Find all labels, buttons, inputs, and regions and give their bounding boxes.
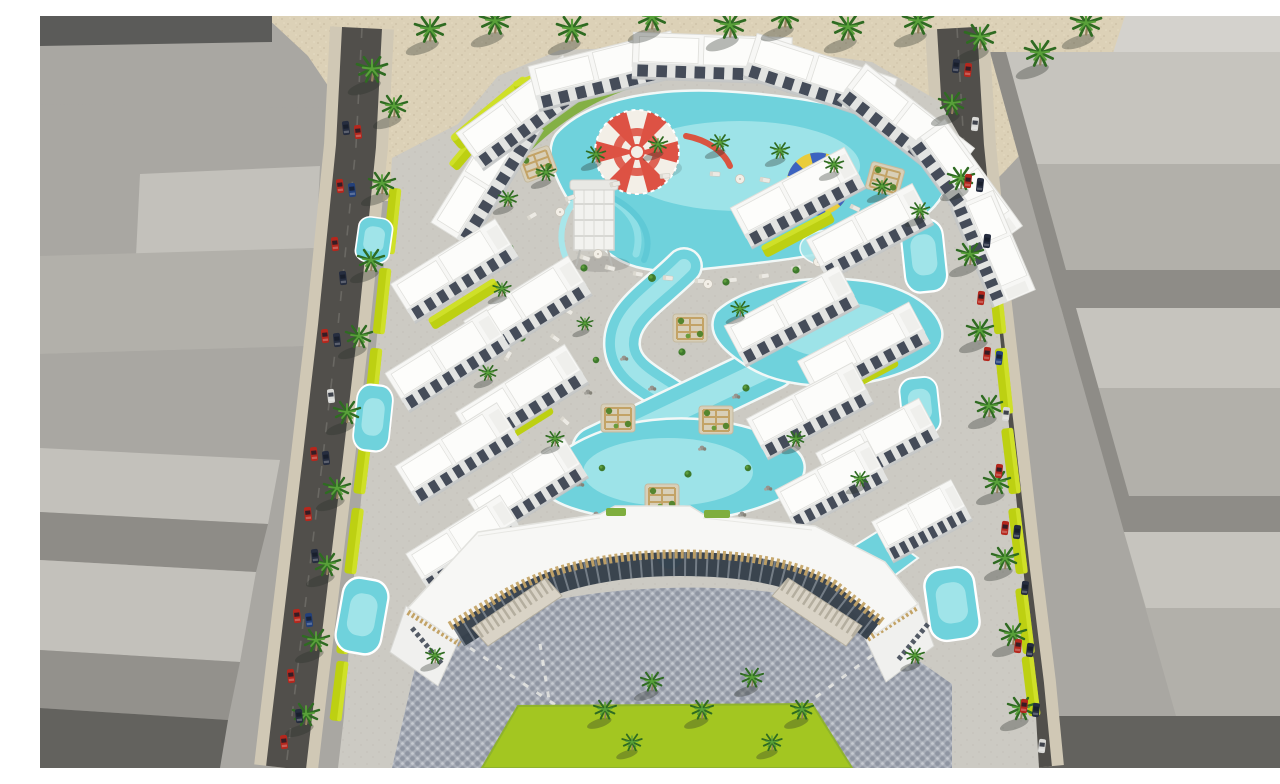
car bbox=[336, 179, 344, 194]
car bbox=[305, 613, 313, 628]
car bbox=[1020, 699, 1028, 714]
shrub bbox=[722, 278, 729, 285]
car bbox=[1021, 581, 1029, 596]
shrub bbox=[593, 357, 599, 363]
car bbox=[1001, 521, 1009, 536]
car bbox=[293, 609, 301, 624]
car bbox=[295, 709, 303, 724]
car bbox=[310, 447, 318, 462]
sun-lounger bbox=[663, 275, 673, 280]
car bbox=[321, 329, 329, 344]
sun-lounger bbox=[660, 173, 670, 178]
car bbox=[964, 174, 972, 189]
parasol-umbrella bbox=[704, 280, 713, 289]
car bbox=[971, 117, 979, 132]
parasol-umbrella bbox=[594, 250, 603, 259]
shrub bbox=[678, 348, 685, 355]
car bbox=[339, 271, 347, 286]
car bbox=[342, 121, 350, 136]
perimeter-pool bbox=[922, 565, 982, 643]
sun-lounger bbox=[710, 172, 720, 177]
parasol-umbrella bbox=[736, 175, 745, 184]
aerial-render bbox=[40, 16, 1280, 768]
car bbox=[995, 464, 1003, 479]
car bbox=[995, 351, 1003, 366]
shrub bbox=[580, 264, 587, 271]
shrub bbox=[742, 384, 749, 391]
car bbox=[1038, 739, 1046, 754]
shrub bbox=[745, 465, 751, 471]
car bbox=[964, 63, 972, 78]
pergola-island bbox=[699, 406, 733, 434]
shrub bbox=[684, 470, 691, 477]
car bbox=[952, 59, 960, 74]
pergola-island bbox=[673, 314, 707, 342]
car bbox=[304, 507, 312, 522]
car bbox=[977, 291, 985, 306]
pergola-island bbox=[601, 404, 635, 432]
shrub bbox=[792, 266, 799, 273]
car bbox=[1013, 525, 1021, 540]
car bbox=[331, 237, 339, 252]
car bbox=[348, 183, 356, 198]
car bbox=[983, 347, 991, 362]
shrub bbox=[599, 465, 605, 471]
car bbox=[311, 549, 319, 564]
car bbox=[983, 234, 991, 249]
car bbox=[1014, 639, 1022, 654]
car bbox=[287, 669, 295, 684]
car bbox=[1026, 643, 1034, 658]
car bbox=[354, 125, 362, 140]
car bbox=[322, 451, 330, 466]
shrub bbox=[648, 274, 656, 282]
car bbox=[333, 333, 341, 348]
car bbox=[327, 389, 335, 404]
car bbox=[280, 735, 288, 750]
car bbox=[1032, 703, 1040, 718]
car bbox=[1002, 407, 1010, 422]
render-canvas bbox=[40, 16, 1280, 768]
entrance-lawn bbox=[482, 704, 852, 768]
parasol-umbrella bbox=[556, 208, 565, 217]
car bbox=[976, 178, 984, 193]
